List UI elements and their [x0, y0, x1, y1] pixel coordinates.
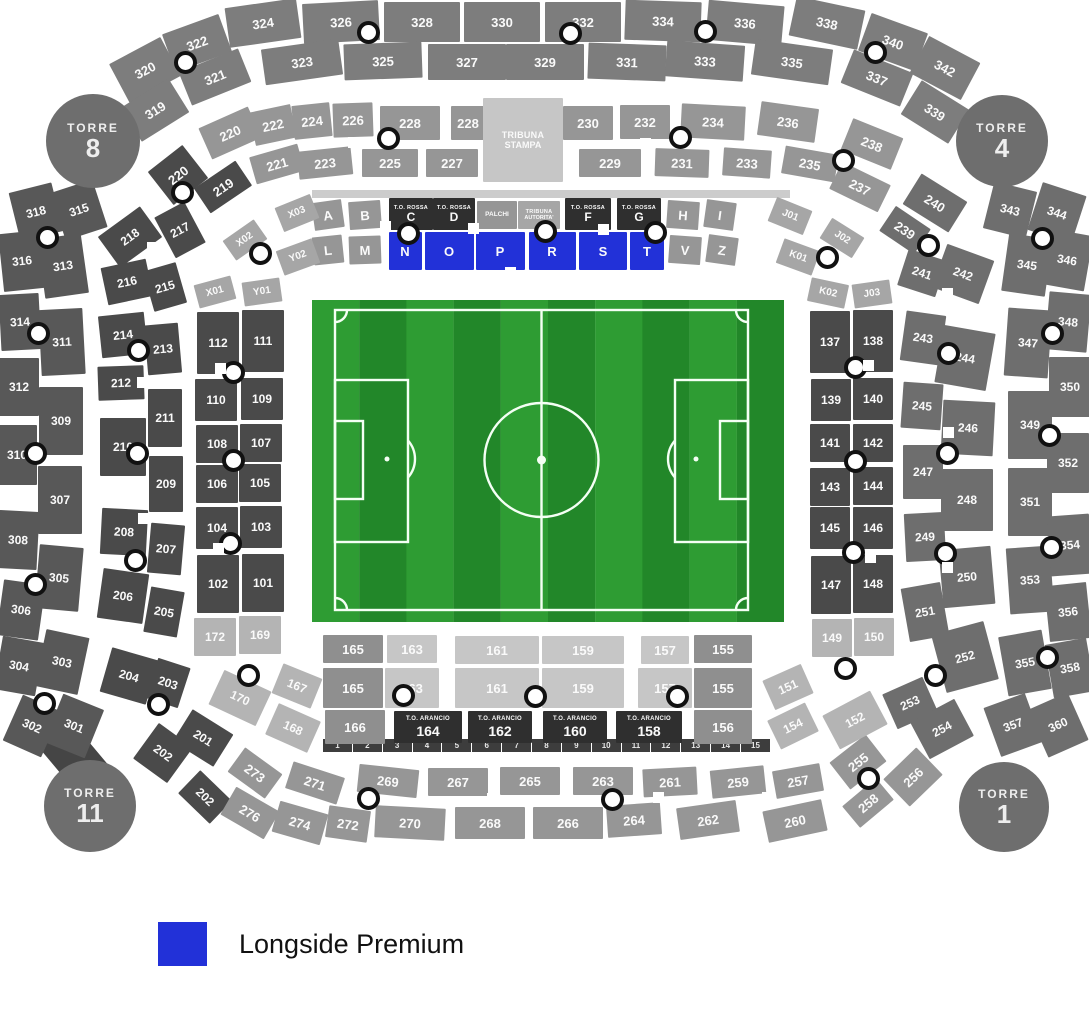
section-label: 271 — [303, 773, 328, 792]
section-label: 237 — [847, 176, 872, 197]
section-label: Z — [717, 243, 727, 257]
section-label: 238 — [859, 134, 884, 154]
section-232: 232 — [620, 105, 670, 139]
section-158: T.O. ARANCIO158 — [616, 711, 682, 743]
section-217: 217 — [154, 202, 206, 259]
gate-marker-icon — [1041, 322, 1064, 345]
section-label: 143 — [820, 481, 840, 493]
section-333: 333 — [665, 40, 745, 81]
gate-marker-icon — [377, 127, 400, 150]
gate-marker-icon — [644, 221, 667, 244]
gate-marker-icon — [559, 22, 582, 45]
section-label: 245 — [912, 399, 933, 412]
section-label: 330 — [491, 16, 513, 29]
section-159: 159 — [542, 636, 624, 664]
section-x01: X01 — [194, 275, 237, 308]
section-338: 338 — [789, 0, 866, 50]
section-label: 227 — [441, 157, 463, 170]
section-label: 159 — [572, 644, 594, 657]
section-272: 272 — [325, 805, 371, 843]
section-152: 152 — [822, 691, 888, 750]
section-s[interactable]: S — [579, 232, 627, 270]
section-label: A — [322, 208, 333, 222]
section-label: 219 — [210, 176, 235, 199]
access-gap-mark — [598, 224, 609, 235]
section-label: 214 — [112, 328, 133, 342]
section-268: 268 — [455, 807, 525, 839]
section-label: T — [643, 245, 651, 258]
gate-marker-icon — [126, 442, 149, 465]
section-307: 307 — [38, 466, 82, 534]
section-label: 161 — [486, 682, 508, 695]
section-label: 304 — [8, 658, 30, 673]
section-274: 274 — [272, 801, 329, 846]
gate-marker-icon — [397, 222, 420, 245]
section-label: 323 — [290, 54, 313, 70]
section-165: 165 — [323, 668, 383, 708]
section-label: 164 — [416, 724, 439, 738]
gate-marker-icon — [36, 226, 59, 249]
section-label: 254 — [930, 719, 953, 739]
section-label: I — [717, 208, 722, 221]
section-218: 218 — [98, 206, 162, 267]
section-331: 331 — [587, 43, 666, 82]
section-label: 207 — [155, 542, 176, 556]
gate-marker-icon — [174, 51, 197, 74]
gate-marker-icon — [1038, 424, 1061, 447]
section-label: 335 — [780, 54, 803, 70]
section-label: 325 — [372, 54, 394, 68]
gate-marker-icon — [669, 126, 692, 149]
section-label: 161 — [486, 644, 508, 657]
section-360: 360 — [1027, 692, 1088, 757]
section-label: 162 — [488, 724, 511, 738]
section-303: 303 — [34, 629, 89, 695]
section-label: 234 — [702, 115, 724, 129]
section-323: 323 — [261, 39, 343, 86]
gate-marker-icon — [601, 788, 624, 811]
gate-marker-icon — [844, 450, 867, 473]
section-161: 161 — [455, 636, 539, 664]
section-label: 160 — [563, 724, 586, 738]
section-label: 228 — [457, 117, 479, 130]
section-z: Z — [705, 234, 739, 266]
section-label: 208 — [114, 525, 135, 538]
access-gap-mark — [215, 363, 226, 374]
access-gap-mark — [863, 360, 874, 371]
section-label: 236 — [776, 114, 799, 130]
section-label: O — [444, 245, 454, 258]
gate-marker-icon — [24, 442, 47, 465]
section-211: 211 — [148, 389, 182, 447]
section-label: 265 — [519, 775, 541, 788]
gate-marker-icon — [127, 339, 150, 362]
section-265: 265 — [500, 767, 560, 795]
section-257: 257 — [772, 763, 824, 799]
section-label: 329 — [534, 56, 556, 69]
section-356: 356 — [1044, 582, 1089, 642]
section-103: 103 — [240, 506, 282, 548]
section-label: 333 — [694, 54, 717, 68]
section-label: 104 — [207, 522, 227, 534]
tower-number: 11 — [76, 800, 104, 826]
section-label: 230 — [577, 117, 599, 130]
section-label: 156 — [712, 721, 734, 734]
section-label: 313 — [52, 259, 74, 274]
section-label: 148 — [863, 578, 883, 590]
section-label: V — [680, 243, 690, 257]
section-label: 107 — [251, 437, 271, 449]
section-label: 218 — [118, 226, 141, 247]
section-j01: J01 — [768, 197, 813, 235]
section-label: 158 — [637, 724, 660, 738]
section-label: 353 — [1020, 573, 1041, 586]
section-225: 225 — [362, 149, 418, 177]
section-label: 247 — [913, 466, 933, 478]
section-label: 250 — [956, 570, 977, 584]
pitch-graphic — [312, 300, 784, 622]
section-label: J02 — [832, 229, 851, 246]
section-label: 202 — [194, 786, 217, 809]
section-label: 112 — [208, 337, 227, 349]
gate-marker-icon — [937, 342, 960, 365]
section-328: 328 — [384, 2, 460, 42]
section-label: 159 — [572, 682, 594, 695]
section-335: 335 — [751, 39, 833, 86]
section-label: 273 — [242, 761, 267, 784]
section-y02: Y02 — [276, 238, 321, 275]
section-label: 102 — [208, 578, 228, 590]
section-276: 276 — [220, 787, 279, 840]
section-label: 204 — [118, 667, 141, 684]
tower-number: 1 — [997, 801, 1011, 827]
section-label: 151 — [776, 677, 799, 696]
section-label: 222 — [261, 116, 285, 133]
section-label: 216 — [116, 274, 138, 290]
section-label: 101 — [253, 577, 273, 589]
section-label: 260 — [783, 812, 807, 829]
section-245: 245 — [900, 382, 943, 431]
section-m: M — [349, 235, 382, 264]
section-231: 231 — [655, 148, 710, 178]
gate-marker-icon — [524, 685, 547, 708]
section-label: 220 — [217, 123, 242, 144]
section-label: 268 — [479, 817, 501, 830]
section-label: J01 — [780, 208, 799, 224]
section-label: 108 — [207, 438, 227, 450]
section-327: 327 — [428, 44, 506, 80]
section-140: 140 — [853, 378, 893, 420]
access-gap-mark — [653, 792, 664, 803]
section-label: 306 — [10, 603, 32, 618]
gate-marker-icon — [1040, 536, 1063, 559]
section-h: H — [666, 200, 700, 230]
section-label: 327 — [456, 56, 478, 69]
section-label: 235 — [798, 156, 822, 173]
section-332: 332 — [545, 2, 621, 42]
section-label: 272 — [336, 816, 359, 832]
section-label: 259 — [727, 774, 750, 789]
section-304: 304 — [0, 636, 44, 696]
gate-marker-icon — [171, 181, 194, 204]
section-149: 149 — [812, 619, 852, 657]
section-label: 263 — [592, 775, 614, 788]
section-label: 352 — [1058, 457, 1078, 469]
section-label: 202 — [151, 742, 174, 763]
section-label: 139 — [821, 394, 841, 406]
section-label: 315 — [68, 201, 91, 219]
section-label: 232 — [634, 116, 656, 129]
section-219: 219 — [194, 161, 252, 214]
section-label: 111 — [254, 335, 273, 347]
section-label: 144 — [863, 480, 883, 492]
section-label: K02 — [818, 286, 838, 300]
section-label: 343 — [999, 202, 1021, 218]
section-label: 165 — [342, 643, 364, 656]
section-stampa: TRIBUNASTAMPA — [483, 98, 563, 182]
section-270: 270 — [374, 805, 446, 841]
section-label: 209 — [156, 478, 176, 490]
gate-marker-icon — [249, 242, 272, 265]
section-label: 203 — [157, 674, 180, 692]
section-label: 229 — [599, 157, 621, 170]
section-221: 221 — [249, 144, 305, 185]
section-label: 155 — [712, 682, 734, 695]
football-pitch — [312, 300, 784, 622]
section-label: 163 — [401, 643, 423, 656]
section-109: 109 — [241, 378, 283, 420]
section-label: 137 — [820, 336, 840, 348]
gate-marker-icon — [917, 234, 940, 257]
section-label: 270 — [399, 816, 421, 830]
section-p[interactable]: P — [476, 232, 525, 270]
section-label: 167 — [285, 677, 308, 696]
section-271: 271 — [285, 761, 345, 804]
gate-marker-icon — [534, 220, 557, 243]
section-261: 261 — [642, 767, 697, 798]
section-label: 345 — [1016, 258, 1038, 273]
gate-marker-icon — [27, 322, 50, 345]
gate-marker-icon — [147, 693, 170, 716]
section-label: 311 — [52, 336, 72, 349]
section-label: 157 — [654, 644, 676, 657]
section-329: 329 — [506, 44, 584, 80]
section-label: 233 — [736, 156, 759, 170]
tower-number: 8 — [86, 135, 100, 161]
section-label: 337 — [864, 68, 889, 88]
section-111: 111 — [242, 310, 284, 372]
access-gap-mark — [942, 562, 953, 573]
gate-marker-icon — [816, 246, 839, 269]
section-label: Y02 — [288, 249, 308, 264]
gate-marker-icon — [842, 541, 865, 564]
gate-marker-icon — [357, 21, 380, 44]
section-label: M — [359, 243, 370, 256]
section-label: 149 — [822, 632, 842, 644]
section-228: 228 — [451, 106, 485, 140]
section-325: 325 — [343, 42, 422, 81]
section-label: D — [450, 211, 459, 223]
section-label: P — [496, 245, 505, 258]
section-k02: K02 — [807, 277, 849, 308]
section-label: 147 — [821, 579, 841, 591]
gate-marker-icon — [924, 664, 947, 687]
tower-1: TORRE1 — [959, 762, 1049, 852]
section-label: X01 — [205, 285, 225, 299]
section-159: 159 — [542, 668, 624, 708]
section-205: 205 — [143, 586, 184, 637]
section-label: 241 — [911, 264, 934, 282]
section-236: 236 — [757, 101, 819, 143]
section-165: 165 — [323, 635, 383, 663]
section-144: 144 — [853, 467, 893, 505]
section-162: T.O. ARANCIO162 — [468, 711, 532, 743]
section-label: 347 — [1018, 336, 1039, 349]
section-308: 308 — [0, 510, 39, 570]
section-label: G — [634, 211, 643, 223]
section-102: 102 — [197, 555, 239, 613]
section-label: 267 — [447, 776, 469, 789]
access-gap-mark — [943, 427, 954, 438]
section-260: 260 — [762, 799, 827, 843]
section-107: 107 — [240, 424, 282, 462]
access-gap-mark — [942, 288, 953, 299]
section-label: 145 — [820, 522, 840, 534]
section-label: 240 — [922, 192, 947, 215]
section-label: 172 — [205, 631, 225, 643]
section-230: 230 — [563, 106, 613, 140]
section-label: 212 — [111, 377, 131, 390]
section-336: 336 — [705, 0, 784, 46]
section-label: 357 — [1002, 716, 1025, 734]
section-palchi: PALCHI — [477, 201, 517, 229]
section-label: 269 — [377, 773, 400, 788]
section-169: 169 — [239, 616, 281, 654]
legend-label: Longside Premium — [239, 929, 464, 960]
section-label: 307 — [50, 494, 70, 506]
section-label: 258 — [856, 791, 881, 815]
gate-marker-icon — [33, 692, 56, 715]
section-150: 150 — [854, 618, 894, 656]
gate-marker-icon — [392, 684, 415, 707]
section-label: 215 — [154, 278, 177, 295]
section-label: 351 — [1020, 496, 1040, 508]
section-label: 312 — [9, 381, 29, 393]
access-gap-mark — [865, 552, 876, 563]
gate-marker-icon — [1031, 227, 1054, 250]
access-gap-mark — [137, 377, 148, 388]
section-label: 168 — [281, 718, 304, 737]
section-label: 251 — [914, 604, 936, 619]
section-label: 253 — [898, 693, 921, 712]
section-110: 110 — [195, 379, 237, 421]
section-label: 257 — [786, 773, 810, 790]
section-222: 222 — [249, 104, 297, 146]
section-label: X03 — [287, 205, 307, 221]
access-gap-mark — [505, 267, 516, 278]
section-label: 336 — [734, 16, 757, 31]
section-167: 167 — [272, 663, 323, 708]
section-label: 276 — [237, 802, 262, 824]
section-label: 106 — [207, 478, 227, 490]
section-label: S — [599, 245, 608, 258]
section-259: 259 — [710, 765, 767, 798]
access-gap-mark — [380, 221, 391, 232]
stadium-seat-map: 123456789101112131415 Longside Premium 3… — [0, 0, 1089, 1032]
section-label: 205 — [153, 604, 175, 619]
section-label: 150 — [864, 631, 884, 643]
section-155: 155 — [694, 668, 752, 708]
section-label: 355 — [1014, 655, 1036, 670]
section-226: 226 — [332, 102, 373, 137]
section-label: 213 — [152, 342, 173, 356]
section-label: 242 — [952, 265, 975, 283]
section-label: 324 — [251, 15, 274, 31]
section-o[interactable]: O — [425, 232, 474, 270]
legend-swatch — [158, 922, 207, 966]
section-label: 105 — [250, 477, 270, 489]
section-151: 151 — [762, 664, 813, 710]
section-label: 239 — [892, 219, 917, 242]
section-227: 227 — [426, 149, 478, 177]
section-312: 312 — [0, 358, 39, 416]
section-label: 249 — [915, 530, 936, 543]
section-label: 256 — [901, 765, 926, 789]
section-label: 169 — [250, 629, 270, 641]
access-gap-mark — [213, 543, 224, 554]
section-label: 350 — [1060, 381, 1080, 393]
section-label: 326 — [330, 15, 352, 29]
gate-marker-icon — [832, 149, 855, 172]
section-label: 261 — [659, 775, 681, 789]
gate-marker-icon — [936, 442, 959, 465]
section-v: V — [668, 235, 702, 265]
section-y01: Y01 — [242, 277, 283, 306]
access-gap-mark — [147, 242, 158, 253]
section-j03: J03 — [852, 279, 893, 308]
walkway-band — [312, 190, 790, 198]
section-label: 360 — [1046, 715, 1069, 734]
section-215: 215 — [143, 262, 187, 312]
section-label: K01 — [788, 249, 809, 265]
section-324: 324 — [225, 0, 302, 48]
section-label: 342 — [932, 57, 957, 79]
section-155: 155 — [694, 635, 752, 663]
section-label: 303 — [51, 654, 73, 670]
section-267: 267 — [428, 768, 488, 796]
tower-8: TORRE8 — [46, 94, 140, 188]
section-172: 172 — [194, 618, 236, 656]
gate-marker-icon — [357, 787, 380, 810]
section-label: 346 — [1056, 252, 1078, 267]
section-143: 143 — [810, 468, 850, 506]
section-label: 328 — [411, 16, 433, 29]
section-248: 248 — [941, 469, 993, 531]
section-label: 228 — [399, 117, 421, 130]
section-label: 320 — [132, 59, 157, 81]
section-label: PALCHI — [485, 212, 509, 219]
section-label: 358 — [1059, 660, 1081, 675]
section-label: L — [323, 243, 332, 257]
section-label: 246 — [958, 421, 979, 434]
section-139: 139 — [811, 379, 851, 421]
section-label: 314 — [10, 315, 31, 328]
section-label: R — [547, 245, 556, 258]
section-label: 224 — [301, 113, 324, 128]
section-label: 338 — [815, 14, 839, 31]
gate-marker-icon — [834, 657, 857, 680]
section-350: 350 — [1049, 357, 1089, 417]
